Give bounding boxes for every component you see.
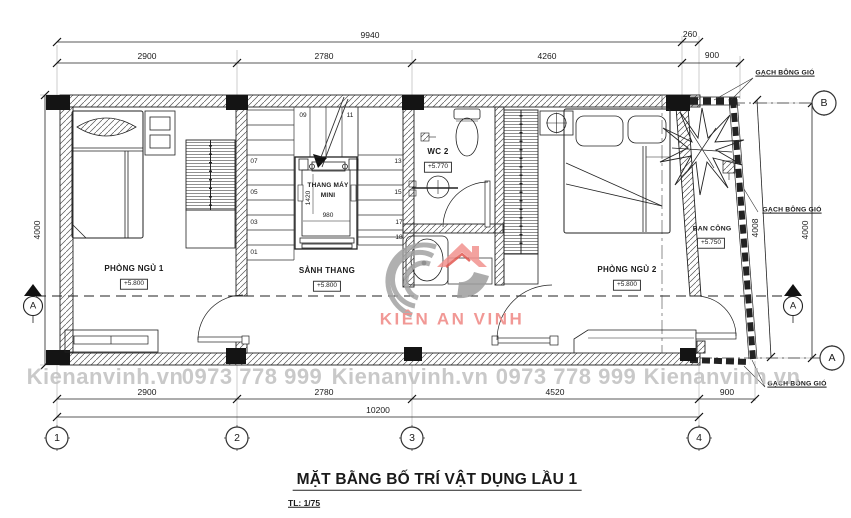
dim-bottom-b: 2780	[315, 388, 334, 397]
room-balcony-label: BAN CÔNG	[693, 227, 732, 234]
stair-step-label: 03	[250, 220, 257, 227]
room-stairhall-level: +5.800	[313, 281, 341, 292]
built-in-wardrobe	[504, 110, 573, 284]
stair-direction-arrow	[313, 154, 327, 168]
room-stairhall-label: SẢNH THANG	[299, 267, 355, 275]
stair-step-label: 07	[250, 159, 257, 166]
stair-step-label: 01	[250, 250, 257, 257]
bedroom1-furniture	[65, 111, 235, 352]
watermark-site: Kienanvinh.vn	[27, 366, 184, 388]
room-bedroom2-level: +5.800	[613, 280, 641, 291]
dim-top-offset: 260	[683, 30, 697, 39]
note-vent-brick-mid: GẠCH BÔNG GIÓ	[762, 208, 821, 215]
balcony-plant	[660, 108, 744, 195]
stair-step-label: 17	[395, 220, 402, 227]
elevator-label-line1: THANG MÁY	[307, 183, 348, 190]
note-vent-brick-top: GẠCH BÔNG GIÓ	[755, 71, 814, 78]
room-wc2-label: WC 2	[427, 148, 448, 156]
dim-top-a: 2900	[138, 52, 157, 61]
grid-bubble-B: B	[820, 98, 827, 109]
dim-bottom-total: 10200	[366, 406, 390, 415]
floorplan-sheet: 9940 260 2900 2780 4260 900 2900 2780 45…	[0, 0, 851, 518]
stair-step-label: 09	[299, 113, 306, 120]
watermark-site: Kienanvinh.vn	[332, 366, 489, 388]
dim-top-c: 4260	[538, 52, 557, 61]
section-marker-left: A	[30, 301, 36, 311]
room-bedroom1-level: +5.800	[120, 279, 148, 290]
elevator-dim-width: 980	[323, 213, 334, 220]
bedroom2-furniture	[564, 109, 696, 353]
grid-bubble-2: 2	[234, 433, 240, 444]
grid-bubble-A: A	[828, 353, 835, 364]
grid-bubble-1: 1	[54, 433, 60, 444]
elevator-label-line2: MINI	[321, 193, 336, 200]
room-bedroom1-label: PHÒNG NGỦ 1	[104, 265, 163, 273]
watermark-phone: 0973 778 999	[496, 366, 637, 388]
grid-bubble-3: 3	[409, 433, 415, 444]
room-balcony-level: +5.750	[697, 238, 725, 249]
watermark-site: Kienanvinh.vn	[644, 366, 801, 388]
section-marker-right: A	[790, 301, 796, 311]
dim-right-height: 4000	[801, 221, 810, 240]
grid-bubble-4: 4	[696, 433, 702, 444]
dim-bottom-balcony: 900	[720, 388, 734, 397]
grid-bubbles	[44, 90, 844, 451]
dim-left-height: 4000	[33, 221, 42, 240]
stair-step-label: 11	[347, 113, 354, 120]
dim-bottom-a: 2900	[138, 388, 157, 397]
dim-right-slant: 4008	[751, 219, 760, 238]
drawing-title: MẶT BẰNG BỐ TRÍ VẬT DỤNG LẦU 1	[293, 472, 582, 491]
stair-step-label: 05	[250, 190, 257, 197]
watermark-phone: 0973 778 999	[182, 366, 323, 388]
staircase	[247, 97, 403, 260]
stair-step-label: 15	[394, 190, 401, 197]
dim-top-b: 2780	[315, 52, 334, 61]
watermark-brand: KIÊN AN VINH	[380, 311, 525, 328]
dim-top-balcony: 900	[705, 51, 719, 60]
drawing-scale: TL: 1/75	[288, 499, 320, 508]
elevator-dim-depth: 1420	[306, 191, 313, 205]
dim-bottom-c: 4520	[546, 388, 565, 397]
stair-step-label: 18	[395, 235, 402, 242]
room-wc2-level: +5.770	[424, 162, 452, 173]
stair-step-label: 13	[394, 159, 401, 166]
floorplan-drawing	[0, 0, 851, 518]
dim-top-total: 9940	[361, 31, 380, 40]
room-bedroom2-label: PHÒNG NGỦ 2	[597, 266, 656, 274]
